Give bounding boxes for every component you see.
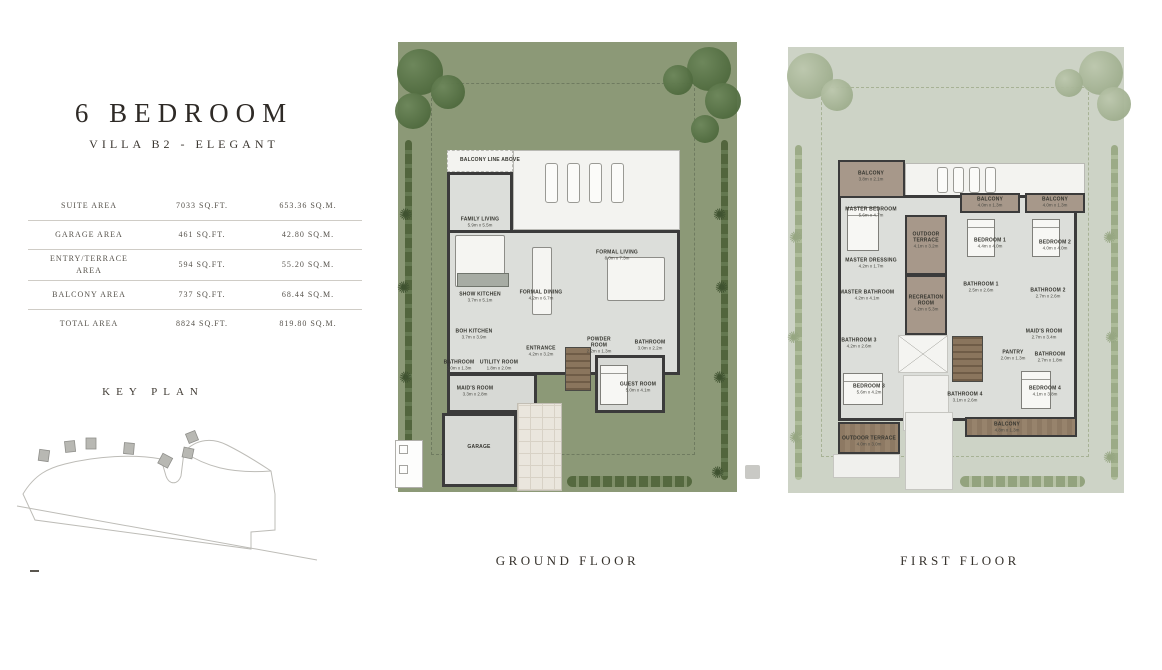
tree-icon <box>663 65 693 95</box>
roof-band <box>905 412 953 490</box>
first-floor-caption: FIRST FLOOR <box>785 553 1135 569</box>
area-row-sqft: 461 SQ.FT. <box>150 229 254 241</box>
area-row-label: ENTRY/TERRACE AREA <box>28 253 150 277</box>
area-row-sqft: 594 SQ.FT. <box>150 259 254 271</box>
palm-tree-icon: ✺ <box>789 230 802 246</box>
sun-lounger <box>567 163 580 203</box>
utility-structure <box>395 440 423 488</box>
area-row-sqft: 737 SQ.FT. <box>150 289 254 301</box>
equipment-box <box>399 445 408 454</box>
table-row: ENTRY/TERRACE AREA 594 SQ.FT. 55.20 SQ.M… <box>28 249 362 280</box>
brochure-page: 6 BEDROOM VILLA B2 - ELEGANT SUITE AREA … <box>0 0 1162 670</box>
driveway <box>517 403 562 491</box>
table-row: SUITE AREA 7033 SQ.FT. 653.36 SQ.M. <box>28 192 362 220</box>
tree-icon <box>691 115 719 143</box>
shrub-row <box>567 476 692 487</box>
area-table: SUITE AREA 7033 SQ.FT. 653.36 SQ.M. GARA… <box>28 192 362 338</box>
balcony-line-strip <box>447 150 513 172</box>
palm-tree-icon: ✺ <box>1103 230 1116 246</box>
area-row-label: TOTAL AREA <box>28 318 150 330</box>
bed-symbol <box>967 219 995 257</box>
bed-symbol <box>1021 371 1051 409</box>
tree-icon <box>821 79 853 111</box>
tree-icon <box>431 75 465 109</box>
villa-marker <box>182 447 194 459</box>
area-row-label: GARAGE AREA <box>28 229 150 241</box>
tree-icon <box>705 83 741 119</box>
villa-marker <box>38 449 49 461</box>
palm-tree-icon: ✺ <box>711 465 724 481</box>
table-row: TOTAL AREA 8824 SQ.FT. 819.80 SQ.M. <box>28 309 362 338</box>
area-row-sqm: 653.36 SQ.M. <box>254 200 362 212</box>
key-plan-map <box>15 408 330 568</box>
palm-tree-icon: ✺ <box>399 370 412 386</box>
area-row-sqm: 68.44 SQ.M. <box>254 289 362 301</box>
staircase <box>565 347 591 391</box>
tree-icon <box>1055 69 1083 97</box>
villa-marker <box>158 453 173 468</box>
palm-tree-icon: ✺ <box>715 280 728 296</box>
recreation-room-block <box>905 275 947 335</box>
sun-lounger <box>545 163 558 203</box>
bed-symbol <box>847 207 879 251</box>
palm-tree-icon: ✺ <box>1105 330 1118 346</box>
page-subtitle: VILLA B2 - ELEGANT <box>28 137 340 152</box>
site-inner-line <box>184 452 271 472</box>
table-row: BALCONY AREA 737 SQ.FT. 68.44 SQ.M. <box>28 280 362 309</box>
hedge-row <box>1111 145 1118 480</box>
bed-symbol <box>600 365 628 405</box>
sun-lounger <box>589 163 602 203</box>
sun-lounger <box>611 163 624 203</box>
garage-block <box>442 413 517 487</box>
staircase <box>952 336 983 382</box>
area-row-sqft: 8824 SQ.FT. <box>150 318 254 330</box>
palm-tree-icon: ✺ <box>787 330 800 346</box>
hedge-row <box>721 140 728 480</box>
page-dash <box>30 570 39 572</box>
bedroom2-balcony <box>1025 193 1085 213</box>
palm-tree-icon: ✺ <box>789 430 802 446</box>
table-row: GARAGE AREA 461 SQ.FT. 42.80 SQ.M. <box>28 220 362 249</box>
outdoor-terrace-block <box>905 215 947 275</box>
bed-symbol <box>843 373 883 405</box>
sun-lounger <box>937 167 948 193</box>
divider-marker <box>745 465 760 479</box>
site-road-line <box>17 506 317 560</box>
area-row-label: BALCONY AREA <box>28 289 150 301</box>
shrub-row <box>960 476 1085 487</box>
area-row-sqm: 42.80 SQ.M. <box>254 229 362 241</box>
palm-tree-icon: ✺ <box>399 207 412 223</box>
area-row-label: SUITE AREA <box>28 200 150 212</box>
villa-marker <box>123 443 134 455</box>
bedroom1-balcony <box>960 193 1020 213</box>
palm-tree-icon: ✺ <box>1103 450 1116 466</box>
area-row-sqm: 55.20 SQ.M. <box>254 259 362 271</box>
villa-marker <box>86 438 96 449</box>
tree-icon <box>395 93 431 129</box>
rear-balcony-deck <box>965 417 1077 437</box>
outdoor-terrace-deck <box>838 422 900 454</box>
bed-symbol <box>1032 219 1060 257</box>
sun-lounger <box>953 167 964 193</box>
villa-marker <box>65 441 76 453</box>
equipment-box <box>399 465 408 474</box>
villa-marker <box>185 430 198 443</box>
key-plan-title: KEY PLAN <box>28 386 278 398</box>
void-roof <box>898 335 948 373</box>
site-boundary <box>23 440 275 549</box>
sun-lounger <box>985 167 996 193</box>
kitchen-island-symbol <box>457 273 509 287</box>
sun-lounger <box>969 167 980 193</box>
palm-tree-icon: ✺ <box>397 280 410 296</box>
first-floor-plan: ✺ ✺ ✺ ✺ ✺ ✺ BALCONY 3.8m x <box>785 35 1135 535</box>
area-row-sqm: 819.80 SQ.M. <box>254 318 362 330</box>
tree-icon <box>1097 87 1131 121</box>
dining-table-symbol <box>532 247 552 315</box>
palm-tree-icon: ✺ <box>713 370 726 386</box>
sofa-symbol <box>607 257 665 301</box>
master-balcony <box>838 160 905 198</box>
ground-floor-plan: ✺ ✺ ✺ ✺ ✺ ✺ ✺ ✺ BALCONY LI <box>395 35 740 535</box>
page-title: 6 BEDROOM <box>28 98 340 129</box>
terrace-apron <box>833 454 900 478</box>
area-row-sqft: 7033 SQ.FT. <box>150 200 254 212</box>
ground-floor-caption: GROUND FLOOR <box>395 553 740 569</box>
palm-tree-icon: ✺ <box>713 207 726 223</box>
hedge-row <box>405 140 412 480</box>
